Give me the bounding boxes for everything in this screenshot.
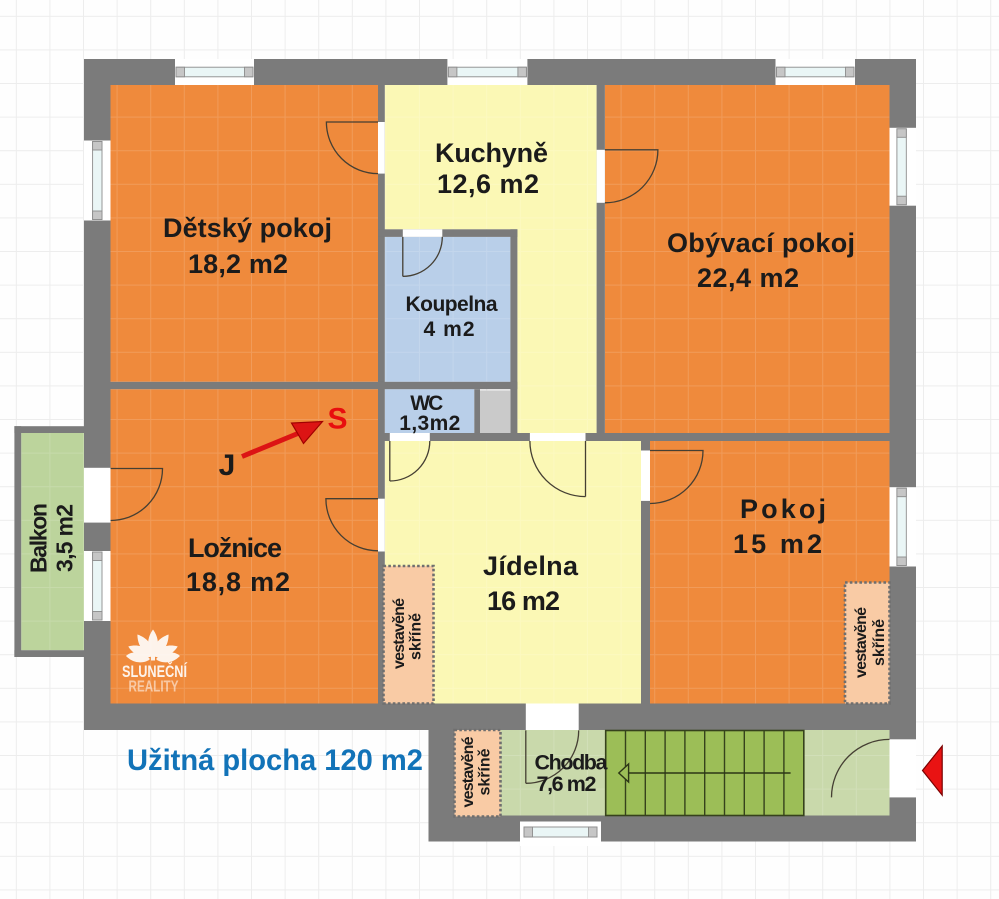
svg-text:REALITY: REALITY <box>129 679 179 696</box>
svg-text:J: J <box>219 449 236 482</box>
svg-text:vestavěné: vestavěné <box>391 598 408 669</box>
svg-text:3,5 m2: 3,5 m2 <box>52 504 78 572</box>
svg-text:4 m2: 4 m2 <box>424 318 475 341</box>
svg-text:7,6 m2: 7,6 m2 <box>537 772 597 796</box>
svg-text:Balkon: Balkon <box>26 503 52 573</box>
svg-text:Kuchyně: Kuchyně <box>435 138 548 168</box>
svg-text:22,4 m2: 22,4 m2 <box>697 263 799 293</box>
svg-text:Chodba: Chodba <box>535 751 609 775</box>
svg-text:1,3m2: 1,3m2 <box>399 412 460 435</box>
svg-text:16 m2: 16 m2 <box>487 586 560 616</box>
svg-text:Užitná plocha 120 m2: Užitná plocha 120 m2 <box>127 744 423 777</box>
svg-text:Jídelna: Jídelna <box>483 551 579 581</box>
svg-text:Dětský pokoj: Dětský pokoj <box>163 213 332 243</box>
svg-text:skříně: skříně <box>477 748 494 795</box>
svg-text:12,6 m2: 12,6 m2 <box>437 169 539 199</box>
svg-text:Pokoj: Pokoj <box>740 494 826 524</box>
svg-text:18,8 m2: 18,8 m2 <box>186 567 290 597</box>
svg-text:Ložnice: Ložnice <box>188 533 282 563</box>
svg-text:vestavěné: vestavěné <box>460 736 477 807</box>
svg-text:Obývací pokoj: Obývací pokoj <box>667 228 855 258</box>
svg-text:18,2 m2: 18,2 m2 <box>188 249 288 279</box>
svg-text:S: S <box>327 403 347 436</box>
svg-text:Koupelna: Koupelna <box>406 293 498 316</box>
svg-text:skříně: skříně <box>408 613 425 660</box>
svg-text:skříně: skříně <box>871 619 888 666</box>
svg-text:vestavěné: vestavěné <box>853 607 870 678</box>
